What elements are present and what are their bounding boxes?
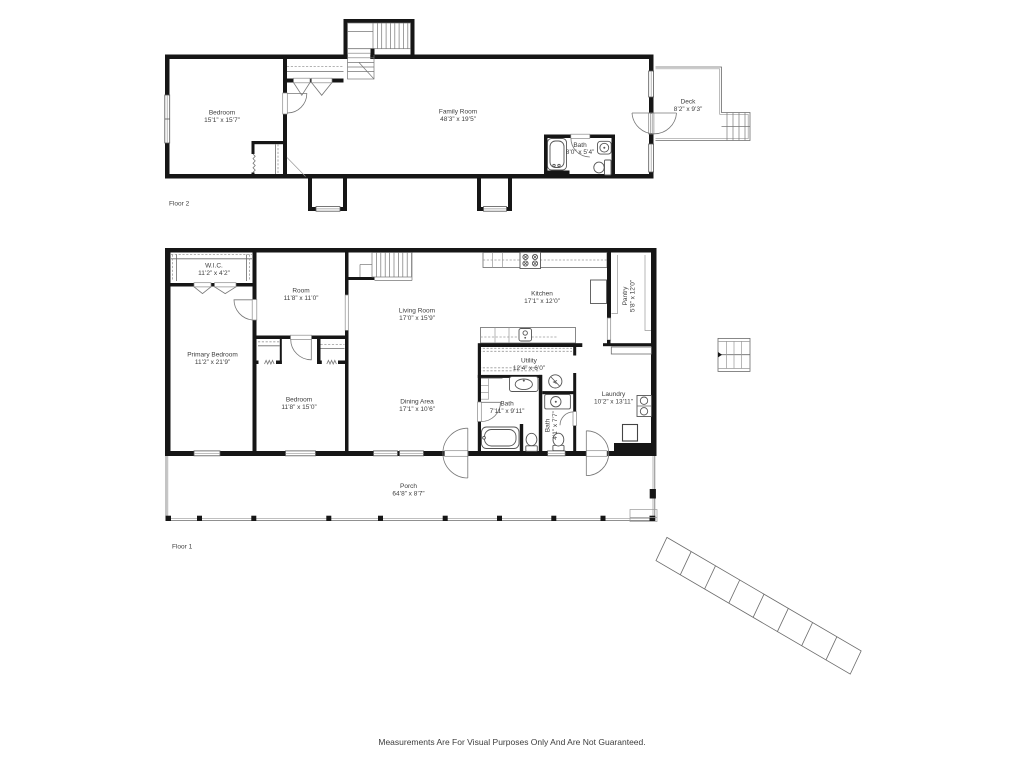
svg-text:10’2” x 13’11”: 10’2” x 13’11” bbox=[594, 399, 633, 406]
svg-text:17’1” x 10’6”: 17’1” x 10’6” bbox=[399, 406, 435, 413]
svg-text:Living Room: Living Room bbox=[399, 308, 435, 315]
svg-text:W.I.C.: W.I.C. bbox=[205, 263, 223, 270]
svg-text:Bath: Bath bbox=[573, 142, 587, 149]
svg-text:4’1” x 7’7”: 4’1” x 7’7” bbox=[552, 411, 559, 440]
svg-text:12’4” x 6’0”: 12’4” x 6’0” bbox=[513, 365, 545, 372]
svg-text:Floor 2: Floor 2 bbox=[169, 201, 190, 208]
svg-text:Pantry: Pantry bbox=[622, 286, 629, 306]
svg-text:17’0” x 15’9”: 17’0” x 15’9” bbox=[399, 315, 435, 322]
svg-text:Room: Room bbox=[292, 288, 309, 295]
svg-text:11’2” x 4’2”: 11’2” x 4’2” bbox=[198, 270, 230, 277]
svg-text:Bath: Bath bbox=[500, 401, 514, 408]
svg-text:Laundry: Laundry bbox=[602, 391, 626, 398]
svg-text:Family Room: Family Room bbox=[439, 109, 477, 116]
svg-text:Kitchen: Kitchen bbox=[531, 291, 553, 298]
svg-text:Dining Area: Dining Area bbox=[400, 399, 434, 406]
svg-text:17’1” x 12’0”: 17’1” x 12’0” bbox=[524, 298, 560, 305]
svg-text:Bath: Bath bbox=[545, 418, 552, 432]
svg-text:Porch: Porch bbox=[400, 483, 417, 490]
svg-text:48’3” x 19’5”: 48’3” x 19’5” bbox=[440, 116, 476, 123]
svg-text:Measurements Are For Visual Pu: Measurements Are For Visual Purposes Onl… bbox=[378, 737, 645, 747]
svg-text:Primary Bedroom: Primary Bedroom bbox=[187, 352, 238, 359]
svg-text:7’11” x 9’11”: 7’11” x 9’11” bbox=[490, 408, 525, 415]
svg-text:8’2” x 9’3”: 8’2” x 9’3” bbox=[674, 106, 703, 113]
svg-text:Utility: Utility bbox=[521, 358, 538, 365]
svg-text:Deck: Deck bbox=[681, 99, 697, 106]
svg-text:11’8” x 15’0”: 11’8” x 15’0” bbox=[281, 404, 316, 411]
svg-text:8’0” x 5’4”: 8’0” x 5’4” bbox=[566, 149, 595, 156]
svg-text:Bedroom: Bedroom bbox=[209, 110, 235, 117]
svg-text:15’1” x 15’7”: 15’1” x 15’7” bbox=[204, 117, 240, 124]
svg-text:11’2” x 21’9”: 11’2” x 21’9” bbox=[195, 359, 230, 366]
svg-text:Floor 1: Floor 1 bbox=[172, 544, 193, 551]
svg-text:11’8” x 11’0”: 11’8” x 11’0” bbox=[284, 295, 319, 302]
svg-text:64’8” x 8’7”: 64’8” x 8’7” bbox=[392, 491, 424, 498]
svg-text:5’8” x 12’0”: 5’8” x 12’0” bbox=[630, 280, 637, 312]
svg-text:Bedroom: Bedroom bbox=[286, 397, 312, 404]
